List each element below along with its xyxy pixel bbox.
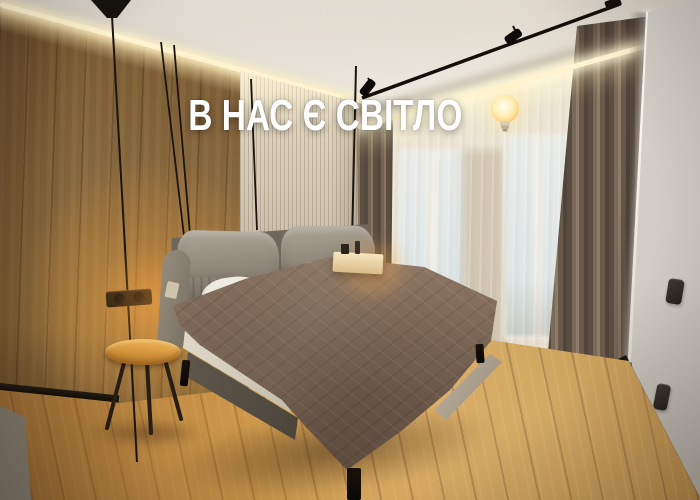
bed-leg xyxy=(475,344,484,364)
story-caption: В НАС Є СВІТЛО xyxy=(0,94,684,138)
light-bulb-icon xyxy=(487,94,523,138)
table-floor-shadow xyxy=(84,420,209,446)
bed-leg xyxy=(347,468,361,500)
nightstand-item xyxy=(341,244,349,254)
caption-text: В НАС Є СВІТЛО xyxy=(188,94,462,138)
bedroom-story-photo: В НАС Є СВІТЛО xyxy=(0,0,700,500)
nightstand-item xyxy=(355,241,360,254)
side-table xyxy=(105,339,181,365)
nightstand xyxy=(333,252,384,275)
